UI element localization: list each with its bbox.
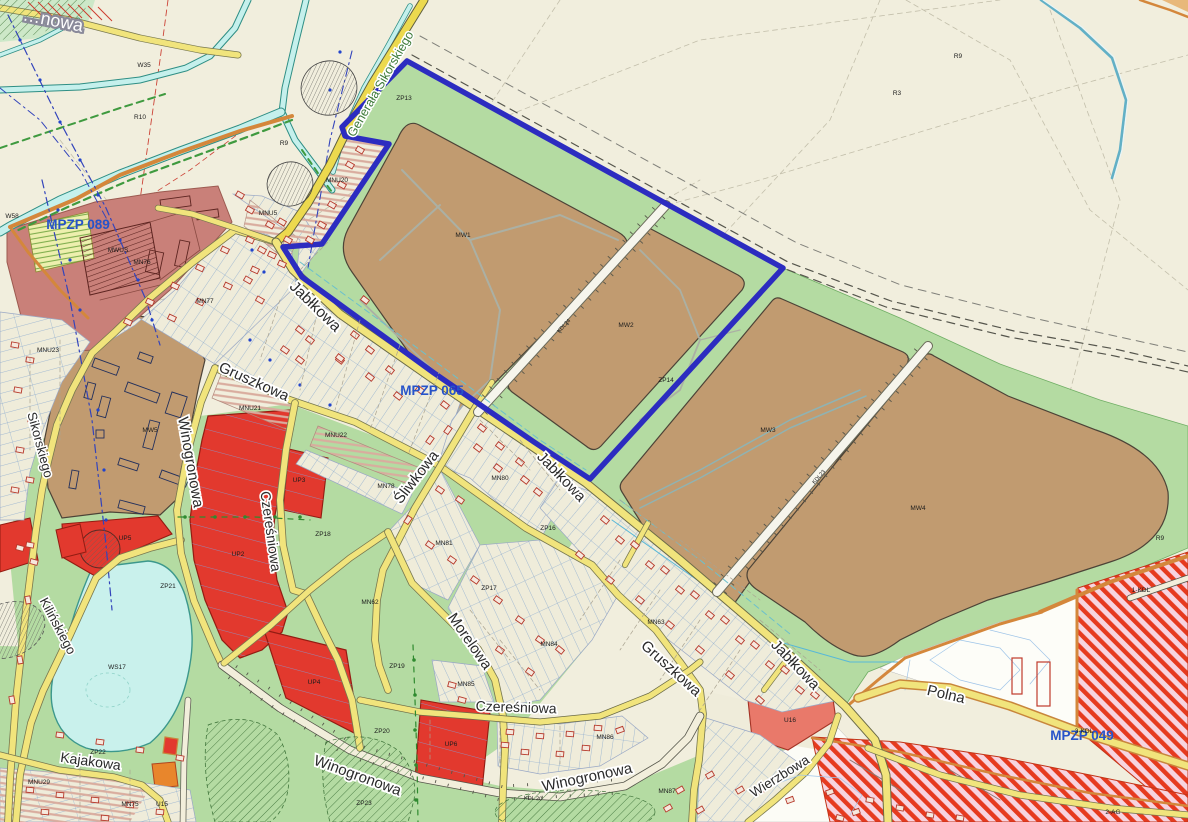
svg-text:R9: R9: [1156, 535, 1165, 542]
svg-text:W35: W35: [137, 62, 151, 69]
svg-text:UP3: UP3: [293, 477, 306, 484]
svg-text:UP6: UP6: [445, 741, 458, 748]
svg-text:UP5: UP5: [119, 535, 132, 542]
svg-text:MW5: MW5: [142, 427, 158, 434]
svg-text:2-AG: 2-AG: [1105, 809, 1120, 816]
svg-text:MN75: MN75: [121, 801, 139, 808]
svg-text:R9: R9: [280, 140, 289, 147]
svg-text:MN77: MN77: [196, 298, 214, 305]
svg-text:ZP13: ZP13: [396, 95, 412, 102]
svg-text:R10: R10: [134, 114, 146, 121]
svg-text:WS17: WS17: [108, 664, 126, 671]
svg-text:ZP23: ZP23: [356, 800, 372, 807]
svg-text:MW3: MW3: [760, 427, 776, 434]
svg-text:MW4: MW4: [910, 505, 926, 512]
svg-text:Czereśniowa: Czereśniowa: [475, 698, 557, 717]
svg-text:U16: U16: [784, 717, 796, 724]
svg-text:MN78: MN78: [377, 483, 395, 490]
svg-text:ZP20: ZP20: [374, 728, 390, 735]
svg-text:1-KDL: 1-KDL: [1132, 587, 1151, 594]
svg-text:U15: U15: [156, 801, 168, 808]
svg-text:MN86: MN86: [596, 734, 614, 741]
svg-text:MN81: MN81: [435, 540, 453, 547]
svg-text:R9: R9: [954, 53, 963, 60]
svg-text:MNU29: MNU29: [28, 779, 50, 786]
svg-text:MNU5: MNU5: [259, 210, 278, 217]
svg-text:MNU23: MNU23: [37, 347, 59, 354]
svg-text:UP4: UP4: [308, 679, 321, 686]
svg-text:ZP22: ZP22: [90, 749, 106, 756]
svg-text:MNU21: MNU21: [239, 405, 261, 412]
svg-text:KDL 20: KDL 20: [524, 796, 542, 803]
svg-text:R3: R3: [893, 90, 902, 97]
svg-text:MN85: MN85: [457, 681, 475, 688]
svg-text:MW2: MW2: [618, 322, 634, 329]
svg-text:UP2: UP2: [232, 551, 245, 558]
svg-text:MN84: MN84: [540, 641, 558, 648]
svg-text:W58: W58: [5, 213, 19, 220]
svg-text:MPZP 065: MPZP 065: [400, 383, 464, 398]
svg-text:MNU22: MNU22: [325, 432, 347, 439]
svg-text:MN62: MN62: [361, 599, 379, 606]
svg-text:MPZP 089: MPZP 089: [46, 217, 110, 232]
svg-text:MN63: MN63: [647, 619, 665, 626]
svg-text:ZP19: ZP19: [389, 663, 405, 670]
svg-text:ZP16: ZP16: [540, 525, 556, 532]
svg-text:MN80: MN80: [491, 475, 509, 482]
svg-text:MWUS: MWUS: [108, 247, 129, 254]
svg-text:ZP21: ZP21: [160, 583, 176, 590]
svg-text:ZP17: ZP17: [481, 585, 497, 592]
svg-text:ZP18: ZP18: [315, 531, 331, 538]
svg-text:MNU20: MNU20: [326, 177, 348, 184]
svg-text:MW1: MW1: [455, 232, 471, 239]
svg-text:3-KDL: 3-KDL: [1075, 728, 1094, 735]
svg-text:MN87: MN87: [658, 788, 676, 795]
svg-text:MN76: MN76: [133, 259, 151, 266]
svg-text:ZP14: ZP14: [658, 377, 674, 384]
